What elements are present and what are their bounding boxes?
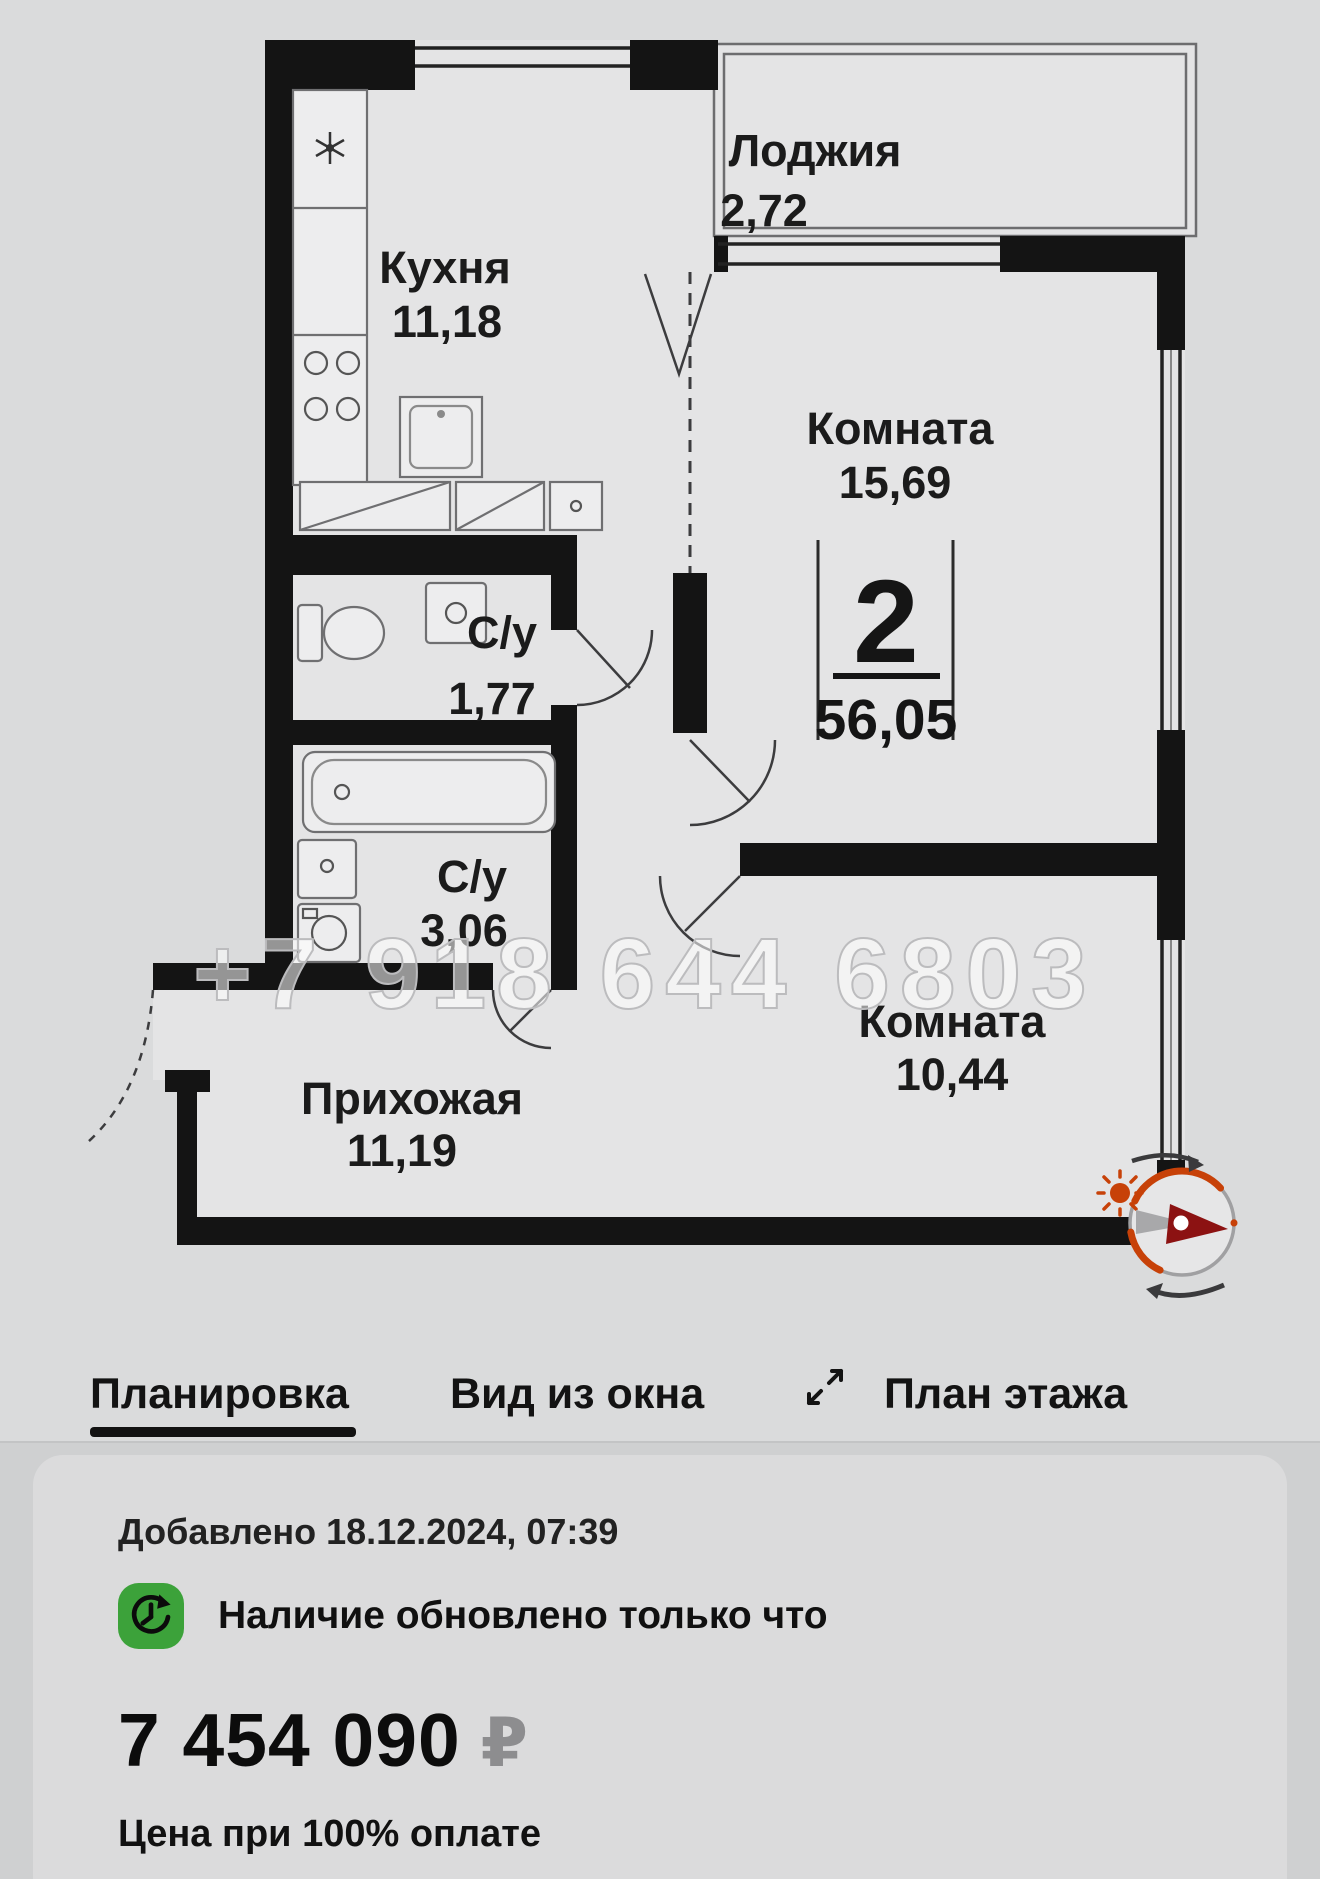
price-value: 7 454 090 (118, 1697, 461, 1783)
badge-total-area: 56,05 (815, 688, 958, 752)
hall-area: 11,19 (347, 1125, 457, 1176)
media-tabs: Планировка Вид из окна План этажа (0, 1362, 1320, 1442)
availability-updated-icon (118, 1583, 184, 1649)
added-date: Добавлено 18.12.2024, 07:39 (118, 1511, 618, 1553)
floor-plan-image[interactable]: Кухня 11,18 Лоджия 2,72 Комната 15,69 С/… (0, 0, 1320, 1360)
loggia-label: Лоджия (729, 125, 902, 176)
loggia-area: 2,72 (720, 185, 808, 236)
listing-info-card: Добавлено 18.12.2024, 07:39 Наличие обно… (33, 1455, 1287, 1879)
wc1-area: 1,77 (448, 673, 536, 724)
tab-floor-plan[interactable]: План этажа (884, 1370, 1127, 1419)
room2-area: 10,44 (896, 1049, 1009, 1100)
badge-rooms-count: 2 (853, 556, 919, 688)
kitchen-label: Кухня (379, 242, 511, 293)
tab-layout[interactable]: Планировка (90, 1370, 349, 1419)
bottom-section: Добавлено 18.12.2024, 07:39 Наличие обно… (0, 1443, 1320, 1879)
wc2-label: С/у (437, 851, 507, 902)
expand-button[interactable] (802, 1364, 848, 1410)
expand-icon (802, 1364, 848, 1410)
active-tab-underline (90, 1427, 356, 1437)
phone-watermark: +7 918 644 6803 (193, 918, 1097, 1030)
sun-icon (1098, 1171, 1142, 1215)
availability-text: Наличие обновлено только что (218, 1594, 828, 1638)
room1-area: 15,69 (839, 457, 952, 508)
room1-label: Комната (807, 403, 995, 454)
tab-window-view[interactable]: Вид из окна (450, 1370, 704, 1419)
kitchen-area: 11,18 (392, 296, 502, 347)
availability-row: Наличие обновлено только что (118, 1581, 828, 1651)
price-row: 7 454 090 ₽ (118, 1697, 528, 1783)
payment-note: Цена при 100% оплате (118, 1813, 541, 1856)
floor-plan-svg: Кухня 11,18 Лоджия 2,72 Комната 15,69 С/… (0, 0, 1320, 1360)
ruble-sign: ₽ (481, 1704, 528, 1783)
hall-label: Прихожая (301, 1073, 523, 1124)
wc1-label: С/у (467, 607, 537, 658)
